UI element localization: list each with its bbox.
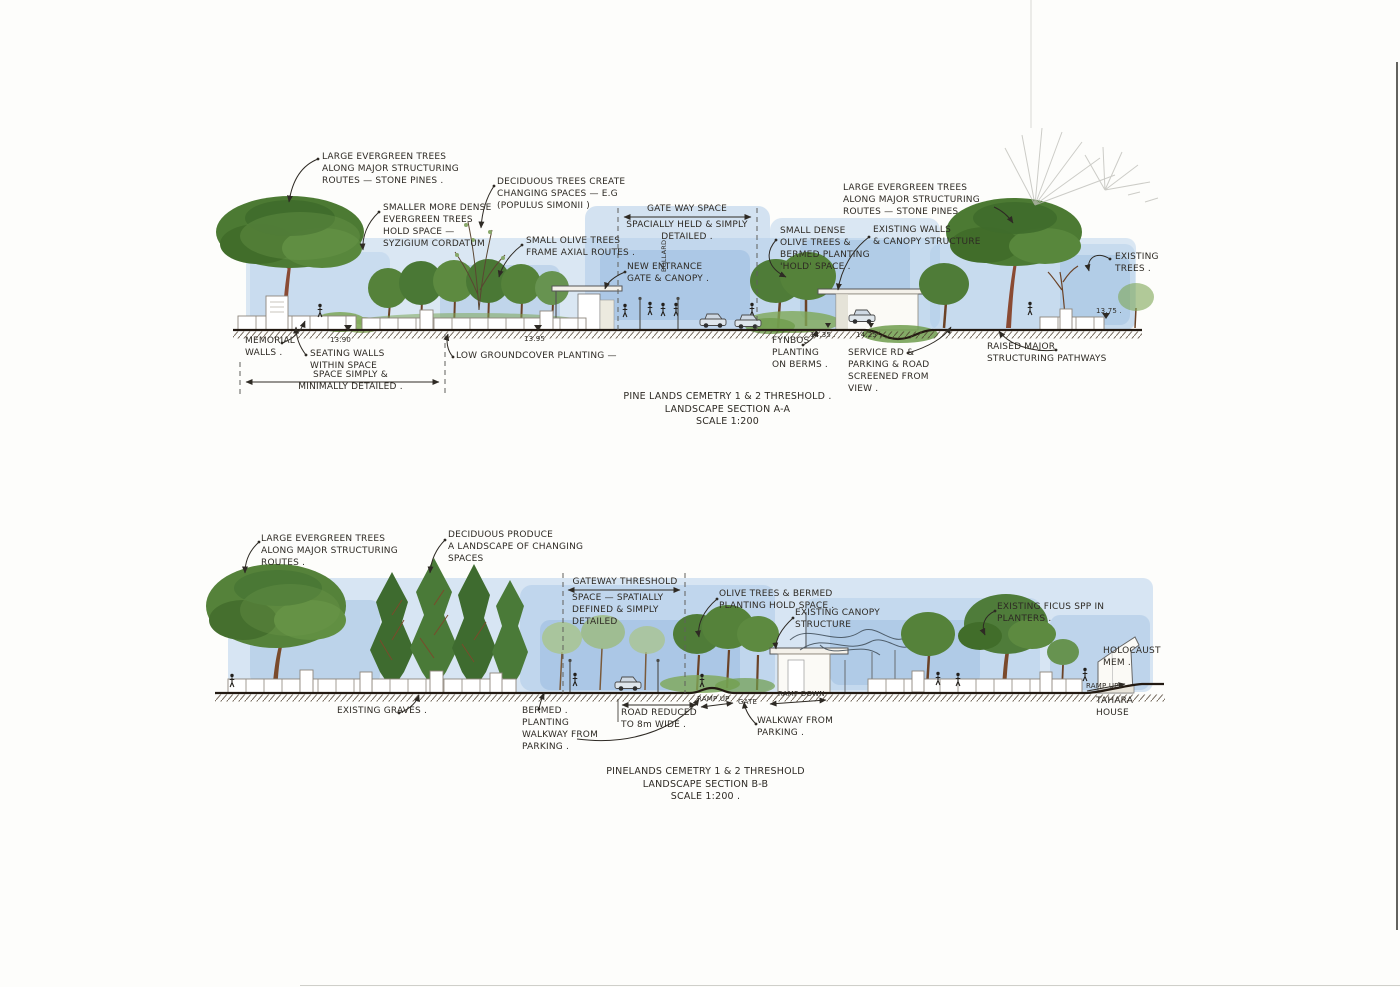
title-block: LANDSCAPE SECTIONS AA & BB - 1:200 DESIG… xyxy=(0,870,1400,987)
drawing-sheet: LARGE EVERGREEN TREES ALONG MAJOR STRUCT… xyxy=(0,0,1400,987)
section-drawings xyxy=(0,0,1400,987)
pencil-sketch-strokes-aa xyxy=(1005,128,1158,205)
scan-artifacts xyxy=(300,0,1400,986)
